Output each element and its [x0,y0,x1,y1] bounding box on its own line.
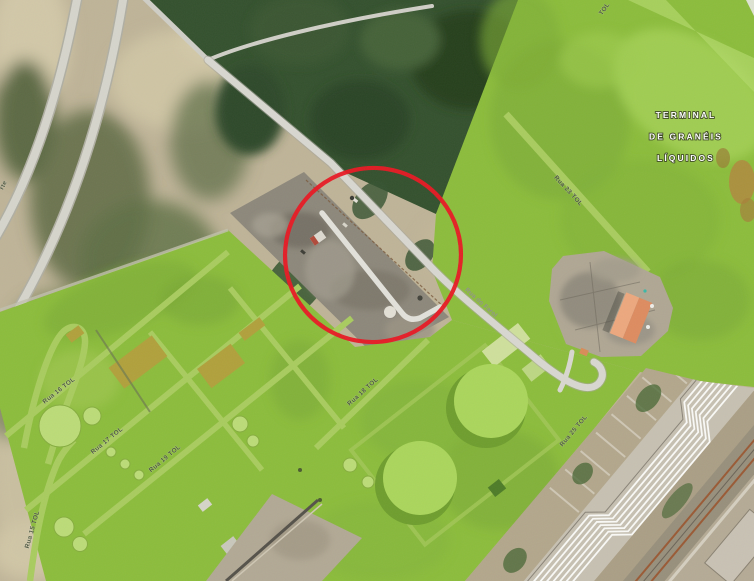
satellite-grain-overlay [0,0,754,581]
map-canvas: Rua 15 TOL Rua 16 TOL Rua 17 TOL Rua 19 … [0,0,754,581]
satellite-map: Rua 15 TOL Rua 16 TOL Rua 17 TOL Rua 19 … [0,0,754,581]
